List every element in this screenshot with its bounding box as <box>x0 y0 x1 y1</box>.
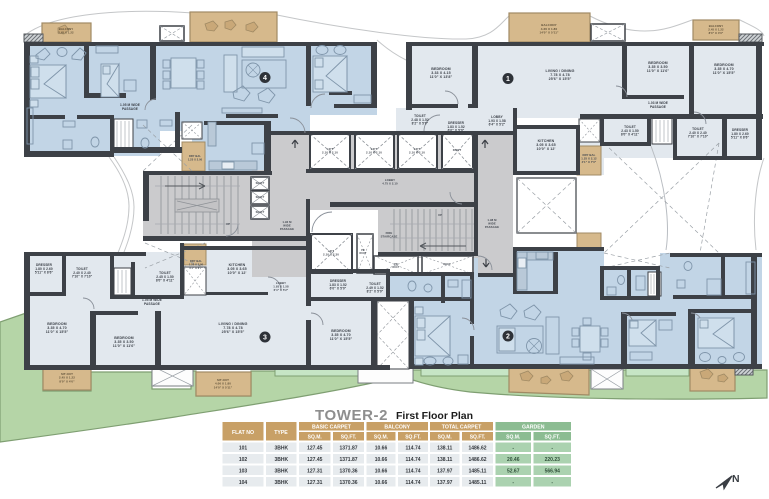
svg-text:First Floor Plan: First Floor Plan <box>396 410 473 422</box>
svg-text:1486.62: 1486.62 <box>468 445 486 451</box>
svg-text:10.66: 10.66 <box>375 480 388 486</box>
svg-text:KITCHEN3.05 X 3.6510'0" X 12': KITCHEN3.05 X 3.6510'0" X 12' <box>227 263 246 275</box>
svg-text:TYPE: TYPE <box>274 430 288 436</box>
svg-text:4: 4 <box>263 75 267 82</box>
svg-text:DRESSER1.80 X 2.605'11" X 8'6": DRESSER1.80 X 2.605'11" X 8'6" <box>35 263 54 275</box>
svg-text:1.03 M WIDEPASSAGE: 1.03 M WIDEPASSAGE <box>648 101 668 109</box>
svg-text:SQ.FT.: SQ.FT. <box>470 435 486 441</box>
svg-text:10.66: 10.66 <box>375 457 388 463</box>
svg-text:SHAFT: SHAFT <box>256 182 265 185</box>
svg-text:114.74: 114.74 <box>405 480 420 486</box>
svg-text:3BHK: 3BHK <box>274 445 288 451</box>
svg-text:104: 104 <box>239 480 248 486</box>
svg-text:BEDROOM3.35 X 4.7011'0" X 15'5: BEDROOM3.35 X 4.7011'0" X 15'5" <box>330 329 353 341</box>
svg-text:UP: UP <box>226 222 230 226</box>
svg-text:BEDROOM3.35 X 4.7011'0" X 15'5: BEDROOM3.35 X 4.7011'0" X 15'5" <box>713 63 736 75</box>
svg-text:SQ.FT.: SQ.FT. <box>405 435 421 441</box>
svg-text:127.45: 127.45 <box>307 445 323 451</box>
svg-text:1486.62: 1486.62 <box>468 457 486 463</box>
svg-text:DRESSER1.80 X 2.605'11" X 8'6": DRESSER1.80 X 2.605'11" X 8'6" <box>731 128 750 140</box>
svg-text:N: N <box>732 473 740 485</box>
svg-text:1485.11: 1485.11 <box>469 468 487 474</box>
svg-text:220.23: 220.23 <box>545 457 561 463</box>
svg-text:3BHK: 3BHK <box>274 457 288 463</box>
svg-text:1371.87: 1371.87 <box>339 445 357 451</box>
svg-text:DUCT: DUCT <box>453 148 462 152</box>
svg-text:566.94: 566.94 <box>545 468 561 474</box>
svg-text:SQ.M.: SQ.M. <box>374 435 389 441</box>
svg-text:3: 3 <box>263 335 267 342</box>
svg-text:SQ.FT.: SQ.FT. <box>341 435 357 441</box>
svg-text:1: 1 <box>506 76 510 83</box>
svg-text:DRESSER1.83 X 1.526'0" X 5'0": DRESSER1.83 X 1.526'0" X 5'0" <box>329 279 347 291</box>
svg-text:1371.87: 1371.87 <box>339 457 357 463</box>
svg-text:3BHK: 3BHK <box>274 480 288 486</box>
svg-text:102: 102 <box>239 457 248 463</box>
svg-text:114.74: 114.74 <box>405 457 420 463</box>
svg-text:FLAT NO: FLAT NO <box>232 430 254 436</box>
svg-text:GARDEN: GARDEN <box>522 425 545 431</box>
svg-text:1370.36: 1370.36 <box>339 480 357 486</box>
svg-text:SQ.M.: SQ.M. <box>438 435 453 441</box>
svg-text:BEDROOM3.35 X 4.7011'0" X 15'5: BEDROOM3.35 X 4.7011'0" X 15'5" <box>46 322 69 334</box>
svg-text:138.11: 138.11 <box>437 457 452 463</box>
svg-text:SHAFT: SHAFT <box>256 196 265 199</box>
svg-text:BASIC CARPET: BASIC CARPET <box>312 425 352 431</box>
svg-text:10.66: 10.66 <box>375 468 388 474</box>
svg-text:101: 101 <box>239 445 248 451</box>
svg-text:SQ.M.: SQ.M. <box>308 435 323 441</box>
svg-text:DUCT: DUCT <box>443 262 451 266</box>
svg-text:BEDROOM3.33 X 4.1511'0" X 13'8: BEDROOM3.33 X 4.1511'0" X 13'8" <box>430 67 453 79</box>
svg-text:DRY BAL1.25 X 2.004'1" X 6'7": DRY BAL1.25 X 2.004'1" X 6'7" <box>189 259 204 270</box>
svg-text:BEDROOM3.35 X 3.5011'0" X 11'6: BEDROOM3.35 X 3.5011'0" X 11'6" <box>647 61 670 73</box>
svg-text:1.05 M WIDEPASSAGE: 1.05 M WIDEPASSAGE <box>142 298 162 306</box>
svg-text:BALCONY2.45 X 1.22: BALCONY2.45 X 1.22 <box>58 27 74 35</box>
svg-text:SQ.FT.: SQ.FT. <box>544 435 560 441</box>
svg-text:138.11: 138.11 <box>437 445 452 451</box>
svg-text:SHAFT: SHAFT <box>256 211 265 214</box>
svg-text:10.66: 10.66 <box>375 445 388 451</box>
svg-text:TOWER-2: TOWER-2 <box>315 407 388 424</box>
svg-text:137.97: 137.97 <box>437 468 453 474</box>
svg-text:1370.36: 1370.36 <box>339 468 357 474</box>
svg-text:BALCONY: BALCONY <box>384 425 410 431</box>
svg-text:BALCONY2.45 X 1.228'0" X 4'0": BALCONY2.45 X 1.228'0" X 4'0" <box>708 24 724 35</box>
svg-text:114.74: 114.74 <box>405 445 420 451</box>
svg-text:20.46: 20.46 <box>507 457 520 463</box>
svg-text:BALCONY4.26 X 1.8014'0" X 5'11: BALCONY4.26 X 1.8014'0" X 5'11" <box>539 23 559 35</box>
svg-text:52.67: 52.67 <box>507 468 520 474</box>
svg-text:127.31: 127.31 <box>307 468 323 474</box>
svg-text:DRESSER1.83 X 1.526'0" X 5'0": DRESSER1.83 X 1.526'0" X 5'0" <box>447 121 465 133</box>
svg-text:2: 2 <box>506 334 510 341</box>
svg-text:114.74: 114.74 <box>405 468 420 474</box>
svg-text:UP: UP <box>438 213 442 217</box>
svg-text:137.97: 137.97 <box>437 480 453 486</box>
svg-text:SQ.M.: SQ.M. <box>506 435 521 441</box>
svg-text:KITCHEN3.05 X 3.6510'0" X 12': KITCHEN3.05 X 3.6510'0" X 12' <box>536 139 555 151</box>
svg-text:TOTAL CARPET: TOTAL CARPET <box>442 425 482 431</box>
svg-text:1.05 M WIDEPASSAGE: 1.05 M WIDEPASSAGE <box>120 103 140 111</box>
svg-text:1485.11: 1485.11 <box>469 480 487 486</box>
svg-text:3BHK: 3BHK <box>274 468 288 474</box>
svg-text:DRY BAL1.25 X 2.124'1" X 7'0": DRY BAL1.25 X 2.124'1" X 7'0" <box>581 153 597 164</box>
svg-text:127.31: 127.31 <box>307 480 323 486</box>
svg-text:DRY BAL1.25 X 2.00: DRY BAL1.25 X 2.00 <box>188 154 203 161</box>
svg-text:127.45: 127.45 <box>307 457 323 463</box>
svg-text:SIT-OUT2.45 X 1.228'0" X 4'0": SIT-OUT2.45 X 1.228'0" X 4'0" <box>59 372 75 383</box>
svg-text:103: 103 <box>239 468 248 474</box>
svg-text:BEDROOM3.35 X 3.5011'0" X 11'6: BEDROOM3.35 X 3.5011'0" X 11'6" <box>113 336 136 348</box>
